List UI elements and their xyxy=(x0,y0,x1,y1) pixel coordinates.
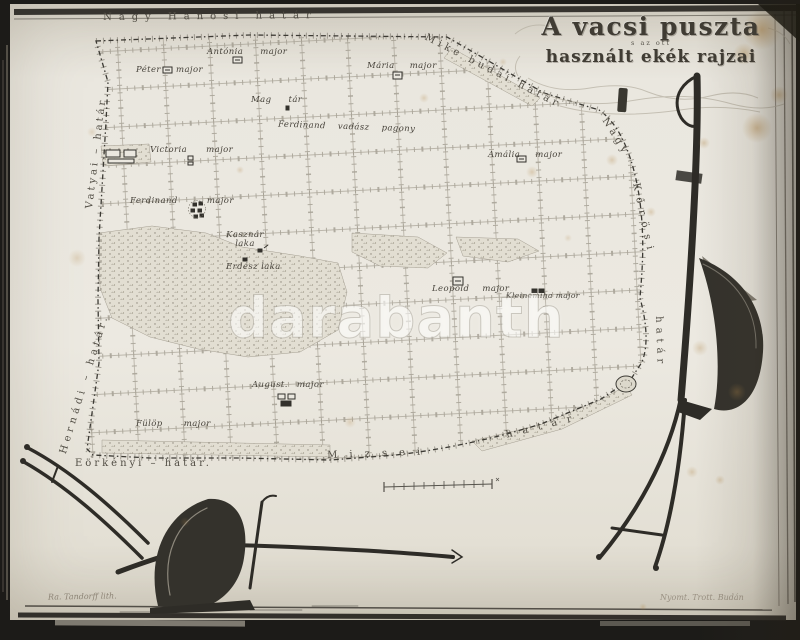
lithographer-signature: Ra. Tandorff lith. xyxy=(48,591,117,601)
place-label-kasznar-laka: Kasznár laka xyxy=(220,231,270,249)
place-label-amalia: Amália major xyxy=(488,150,562,160)
map-title: A vacsi puszta s az ott használt ekék ra… xyxy=(512,12,790,67)
pond xyxy=(616,376,636,392)
place-label-antonia: Antónia major xyxy=(207,47,287,57)
place-label-peter: Péter major xyxy=(136,65,203,75)
plough-bottom xyxy=(20,444,462,615)
map-engraving xyxy=(0,0,800,640)
maria-symbol xyxy=(393,72,402,79)
place-label-ferdinand: Ferdinand major xyxy=(130,196,234,206)
place-label-fulop: Fülöp major xyxy=(136,419,211,429)
place-label-leopold: Leopold major xyxy=(432,284,509,294)
magtar-symbol xyxy=(286,106,289,110)
border-label-top: Nagy Hanosi határ xyxy=(103,10,318,23)
border-label-bottom-left: Eörkényi – határ. xyxy=(75,458,212,469)
place-label-erdesz-laka: Erdész laka xyxy=(226,262,281,272)
scanned-book-page: A vacsi puszta s az ott használt ekék ra… xyxy=(0,0,800,640)
map-title-line2: használt ekék rajzai xyxy=(512,47,790,67)
printer-imprint: Nyomt. Trott. Budán xyxy=(660,593,744,602)
place-label-victoria: Victoria major xyxy=(150,145,233,155)
victoria-symbol xyxy=(188,156,193,165)
border-label-right-lower: határ xyxy=(653,316,666,369)
erdesz-symbol xyxy=(243,258,247,261)
place-label-kleinemiha: Kleinemiha major xyxy=(506,291,580,300)
place-label-august: August. major xyxy=(252,380,324,390)
place-label-magtar: Mag tár xyxy=(251,95,302,105)
title-ornament xyxy=(617,88,628,113)
antonia-symbol xyxy=(233,57,242,63)
map-title-line1: A vacsi puszta xyxy=(512,12,790,41)
scale-bar xyxy=(384,478,499,492)
place-label-maria: Mária major xyxy=(367,61,437,71)
